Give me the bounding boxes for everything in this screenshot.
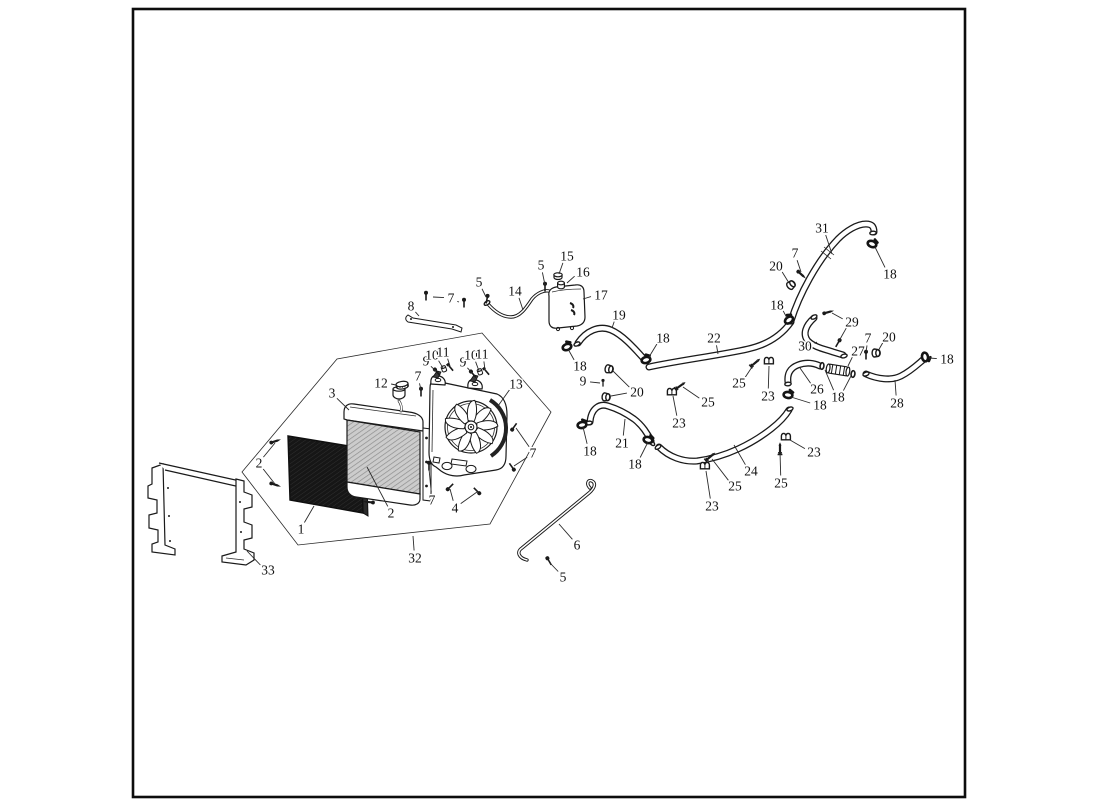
callout-label-16: 16 [576,265,590,280]
callout-label-18: 18 [573,359,587,374]
reservoir-neck [558,281,565,289]
callout-label-18: 18 [770,298,784,313]
callout-label-32: 32 [408,551,422,566]
leader-line [929,358,937,359]
callout-label-18: 18 [583,444,597,459]
callout-label-22: 22 [707,331,721,346]
callout-label-30: 30 [798,339,812,354]
callout-label-18: 18 [883,267,897,282]
callout-label-26: 26 [810,382,824,397]
callout-label-33: 33 [261,563,275,578]
callout-label-2: 2 [256,456,263,471]
callout-label-4: 4 [452,501,459,516]
callout-label-5: 5 [538,258,545,273]
reservoir-cap [554,273,562,280]
callout-label-11: 11 [437,345,450,360]
leader-line [457,301,459,302]
callout-label-25: 25 [732,376,746,391]
callout-label-20: 20 [882,330,896,345]
clamp-23 [781,433,790,439]
callout-label-8: 8 [408,299,415,314]
callout-label-15: 15 [560,249,574,264]
callout-label-23: 23 [761,389,775,404]
oring-18 [820,362,825,369]
callout-label-18: 18 [831,390,845,405]
callout-label-18: 18 [656,331,670,346]
parts-diagram-page: 1223455567777778910119101191213141516171… [0,0,1100,800]
leader-line [433,297,444,298]
callout-label-9: 9 [580,374,587,389]
callout-label-5: 5 [476,275,483,290]
callout-label-7: 7 [415,369,422,384]
callout-label-14: 14 [508,284,522,299]
parts-diagram-canvas: 1223455567777778910119101191213141516171… [0,0,1100,800]
callout-label-28: 28 [890,396,904,411]
callout-label-23: 23 [672,416,686,431]
callout-label-3: 3 [329,386,336,401]
callout-label-7: 7 [429,493,436,508]
callout-label-2: 2 [388,506,395,521]
callout-label-31: 31 [815,221,829,236]
callout-label-7: 7 [448,291,455,306]
page-background [0,0,1100,800]
callout-label-1: 1 [298,522,305,537]
callout-label-29: 29 [845,315,859,330]
callout-label-25: 25 [774,476,788,491]
callout-label-17: 17 [594,288,608,303]
callout-label-19: 19 [612,308,626,323]
callout-label-21: 21 [615,436,629,451]
oring-18 [851,370,856,377]
callout-label-23: 23 [807,445,821,460]
callout-label-13: 13 [509,377,523,392]
callout-label-20: 20 [630,385,644,400]
callout-label-18: 18 [813,398,827,413]
callout-label-12: 12 [374,376,388,391]
callout-label-7: 7 [792,246,799,261]
callout-label-24: 24 [744,464,758,479]
callout-label-6: 6 [574,538,581,553]
callout-label-20: 20 [769,259,783,274]
clamp-23 [764,357,773,363]
callout-label-7: 7 [530,446,537,461]
collar-20 [602,393,611,402]
callout-label-18: 18 [940,352,954,367]
clamp-23 [700,462,709,468]
callout-label-23: 23 [705,499,719,514]
callout-label-27: 27 [851,344,865,359]
callout-label-11: 11 [476,347,489,362]
callout-label-25: 25 [728,479,742,494]
callout-label-7: 7 [865,331,872,346]
callout-label-25: 25 [701,395,715,410]
collar-20 [604,364,613,373]
callout-label-5: 5 [560,570,567,585]
callout-label-18: 18 [628,457,642,472]
